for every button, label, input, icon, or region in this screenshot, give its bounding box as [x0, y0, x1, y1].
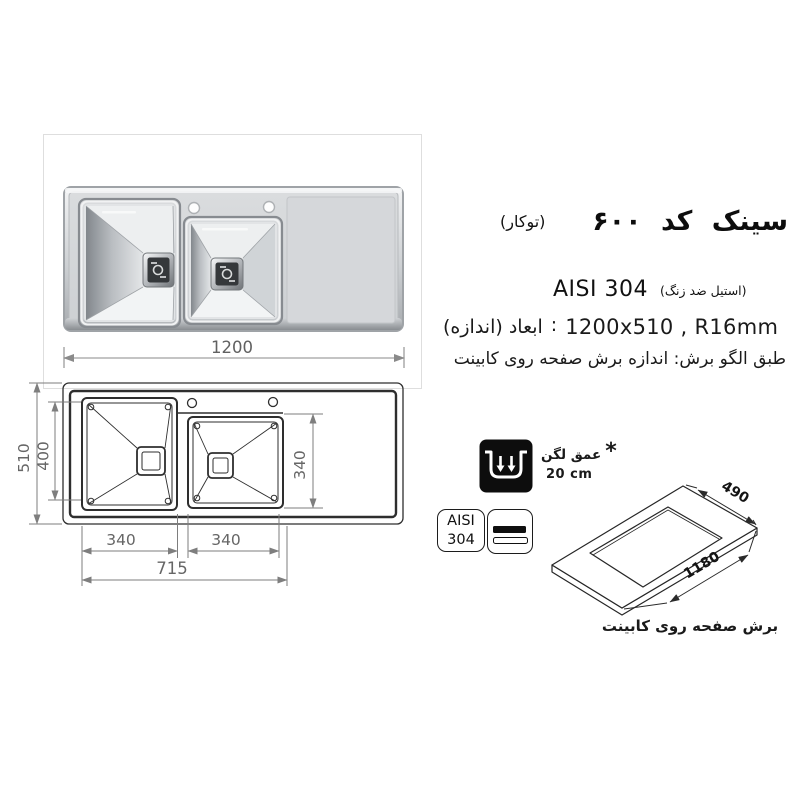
aisi-304-badge: AISI 304 [437, 509, 485, 552]
photo-width-label: 1200 [211, 338, 253, 357]
dim-400: 400 [35, 441, 53, 471]
mount-type-label: (توکار) [500, 212, 545, 231]
dimensions-separator: : [550, 314, 558, 339]
drainboard [287, 197, 395, 323]
bowl-depth-icon [479, 439, 533, 493]
dimensions-value: 1200x510 , R16mm [565, 315, 778, 339]
top-view-drawing: 510 400 340 340 340 715 [14, 374, 434, 600]
bowl1-topview [82, 398, 177, 510]
title-row: (توکار) سینک کد ۶۰۰ [500, 206, 788, 237]
dimensions-label: ابعاد (اندازه) [443, 316, 543, 338]
drain-right [211, 258, 243, 290]
dim-340-bowl2-height: 340 [291, 450, 309, 480]
dim-510: 510 [15, 443, 33, 473]
steel-sheet-icon [487, 509, 533, 554]
material-grade: AISI 304 [553, 277, 648, 302]
cutout-caption: برش صفحه روی کابینت [575, 617, 800, 635]
material-note: (استیل ضد زنگ) [660, 281, 747, 298]
dim-715: 715 [156, 559, 188, 578]
sheet-layer-solid [493, 526, 526, 533]
countertop-slab [552, 486, 757, 615]
sheet-layer-outline [493, 537, 528, 544]
faucet-strip-topview [177, 398, 283, 414]
cutting-note: طبق الگو برش: اندازه برش صفحه روی کابینت [430, 349, 786, 369]
dim-340-bowl2-width: 340 [211, 531, 241, 549]
sink-photo: 1200 [44, 135, 421, 388]
drain-left [143, 253, 174, 287]
page-title: سینک کد ۶۰۰ [592, 206, 788, 237]
bowl2-topview [188, 417, 283, 508]
dim-490: 490 [718, 478, 752, 507]
material-row: AISI 304 (استیل ضد زنگ) [553, 277, 747, 302]
bowl-left [79, 199, 180, 327]
dimensions-row: ابعاد (اندازه) : 1200x510 , R16mm [443, 314, 778, 339]
bowl-right [184, 217, 282, 324]
aisi-badge-line1: AISI [447, 512, 475, 530]
photo-width-dimension: 1200 [64, 338, 404, 368]
sink-spec-sheet: 1200 [0, 0, 800, 800]
dim-340-bowl1-width: 340 [106, 531, 136, 549]
product-photo-box: 1200 [43, 134, 422, 389]
aisi-badge-line2: 304 [447, 531, 475, 549]
